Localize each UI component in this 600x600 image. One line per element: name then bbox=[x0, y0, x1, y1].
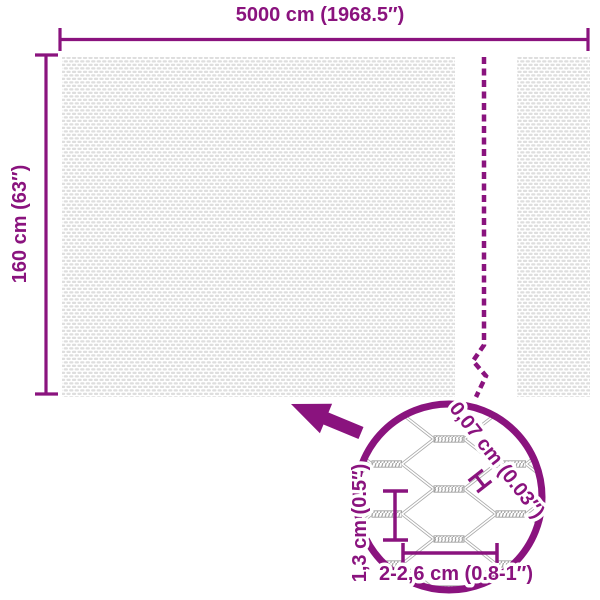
cell-height-label: 1,3 cm (0.5″) bbox=[349, 464, 371, 583]
height-dimension-label: 160 cm (63″) bbox=[9, 165, 31, 284]
height-dimension: 160 cm (63″) bbox=[9, 55, 58, 394]
cell-width-label: 2-2,6 cm (0.8-1″) bbox=[379, 563, 533, 585]
diagram-canvas: 5000 cm (1968.5″) 160 cm (63″) 0,07 cm (… bbox=[0, 0, 600, 600]
break-line bbox=[473, 57, 486, 397]
width-dimension-label: 5000 cm (1968.5″) bbox=[236, 4, 405, 26]
mesh-panel-right bbox=[517, 57, 590, 397]
magnifier-circle: 0,07 cm (0.03″) 1,3 cm (0.5″) 2-2,6 cm (… bbox=[349, 398, 549, 593]
mesh-panel-main bbox=[62, 57, 455, 397]
zoom-arrow-icon bbox=[291, 404, 364, 439]
width-dimension: 5000 cm (1968.5″) bbox=[60, 4, 588, 51]
